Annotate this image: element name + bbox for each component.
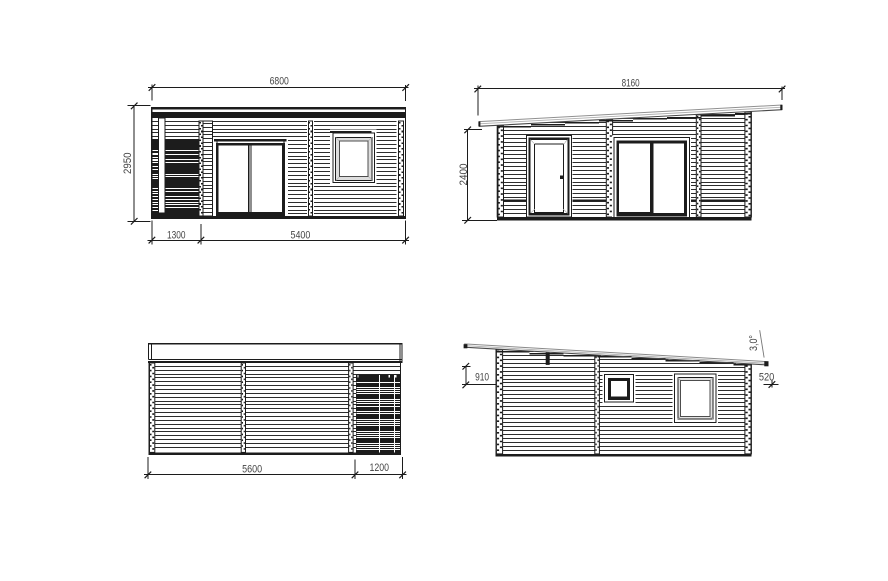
svg-text:5400: 5400 — [291, 230, 311, 242]
svg-text:1200: 1200 — [370, 462, 390, 474]
svg-text:1300: 1300 — [167, 230, 186, 242]
svg-text:520: 520 — [759, 372, 775, 384]
svg-text:2950: 2950 — [122, 152, 134, 174]
svg-text:8160: 8160 — [622, 77, 640, 89]
svg-text:5600: 5600 — [242, 463, 262, 475]
svg-text:910: 910 — [475, 372, 489, 384]
svg-text:6800: 6800 — [270, 75, 289, 87]
svg-text:2400: 2400 — [458, 163, 470, 185]
svg-text:3,0°: 3,0° — [748, 335, 760, 351]
